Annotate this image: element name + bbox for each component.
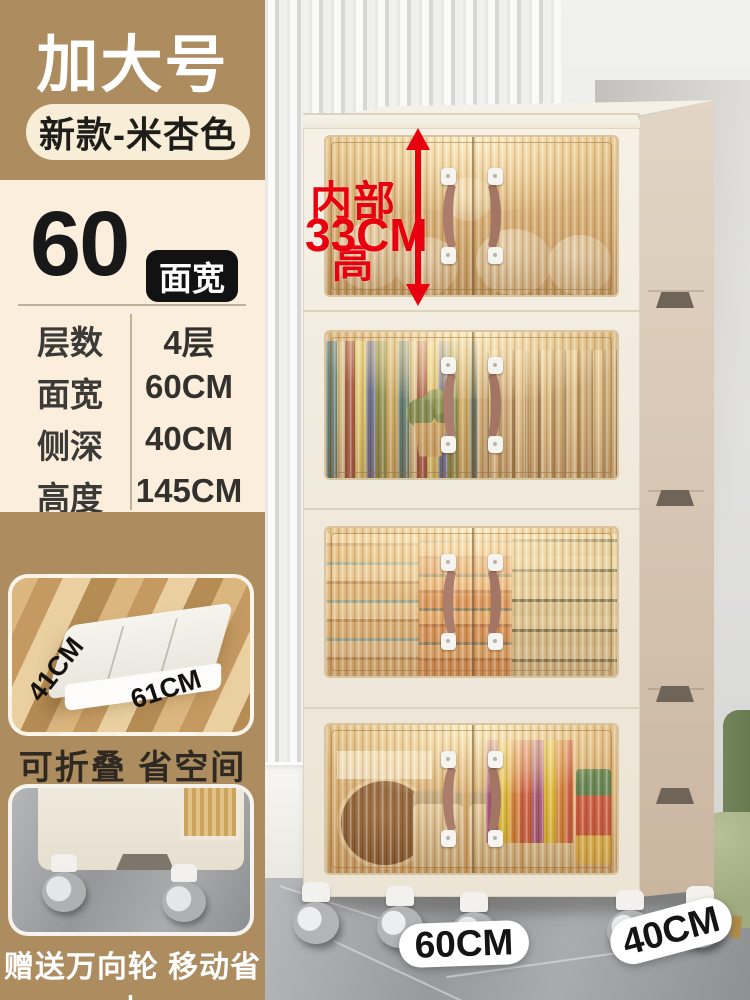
spec-section: 60 面宽 层数 4层 面宽 60CM 侧深 40CM 高度 (0, 180, 265, 512)
spec-row-width: 面宽 60CM (18, 360, 246, 410)
width-callout: 60 面宽 (0, 198, 265, 308)
caster-wheel (42, 854, 86, 912)
width-floor-label: 60CM (398, 920, 529, 969)
side-handle-slot (656, 490, 694, 506)
spec-label: 侧深 (18, 420, 122, 468)
side-handle-slot (656, 788, 694, 804)
tier-4-window (324, 723, 619, 875)
spec-label: 层数 (18, 316, 122, 364)
spec-value: 145CM (132, 472, 246, 510)
wheels-photo (8, 784, 254, 936)
room-scene: 内部高 33CM 60CM 40CM (265, 0, 750, 1000)
side-handle-slot (656, 292, 694, 308)
spec-value: 60CM (132, 368, 246, 406)
fold-caption: 可折叠 省空间 (0, 740, 265, 789)
cabinet-tier-3 (303, 508, 640, 707)
caster-wheel (293, 882, 339, 944)
size-badge: 加大号 (0, 14, 265, 104)
left-info-panel: 加大号 新款-米杏色 60 面宽 层数 4层 面宽 60CM 侧深 (0, 0, 265, 1000)
folded-cabinet-photo: 41CM 61CM (8, 574, 254, 736)
cabinet-tier-4 (303, 707, 640, 897)
spec-value: 40CM (132, 420, 246, 458)
spec-row-height: 高度 145CM (18, 464, 246, 514)
door-handle (435, 751, 509, 847)
measure-arrow-line (415, 146, 421, 288)
width-unit-chip: 面宽 (146, 250, 238, 302)
spec-row-layers: 层数 4层 (18, 308, 246, 358)
side-handle-slot (656, 686, 694, 702)
inner-height-value: 33CM (305, 208, 423, 262)
spec-value: 4层 (132, 316, 246, 364)
arrow-down-icon (406, 284, 430, 306)
cabinet-side-panel (640, 100, 714, 897)
arrow-up-icon (406, 128, 430, 150)
feature-section: 41CM 61CM 可折叠 省空间 赠送万向轮 移动省力 (0, 512, 265, 1000)
header-block: 加大号 新款-米杏色 (0, 0, 265, 180)
door-handle (435, 168, 509, 264)
spec-table: 层数 4层 面宽 60CM 侧深 40CM 高度 145CM (18, 304, 246, 520)
spec-row-depth: 侧深 40CM (18, 412, 246, 462)
wheels-caption: 赠送万向轮 移动省力 (0, 942, 265, 1000)
spec-label: 面宽 (18, 368, 122, 416)
tier-3-window (324, 526, 619, 678)
width-number: 60 (30, 192, 128, 297)
caster-wheel (162, 864, 206, 922)
tier-2-window (324, 330, 619, 480)
product-infographic: 加大号 新款-米杏色 60 面宽 层数 4层 面宽 60CM 侧深 (0, 0, 750, 1000)
cabinet-tier-2 (303, 310, 640, 508)
variant-badge-pill: 新款-米杏色 (26, 104, 250, 160)
door-handle (435, 554, 509, 650)
door-handle (435, 357, 509, 453)
